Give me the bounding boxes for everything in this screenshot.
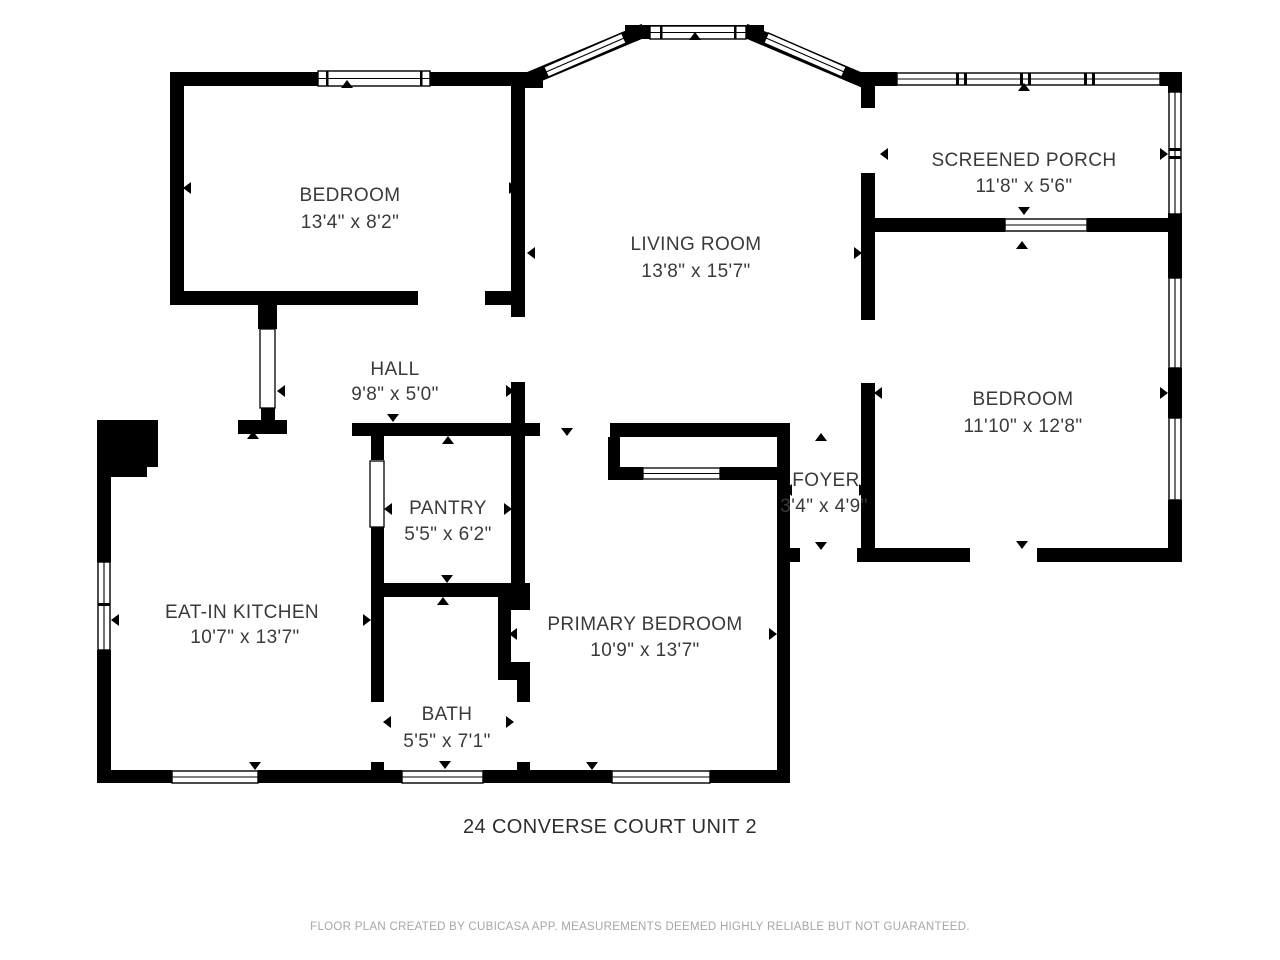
room-name: BATH — [422, 704, 473, 725]
window — [318, 71, 430, 86]
room-label-eat-in-kitchen: EAT-IN KITCHEN 10'7" x 13'7" — [165, 602, 319, 648]
room-label-bath: BATH 5'5" x 7'1" — [403, 704, 490, 752]
room-dimensions: 13'8" x 15'7" — [641, 261, 750, 282]
room-dimensions: 10'7" x 13'7" — [190, 627, 299, 648]
room-name: SCREENED PORCH — [931, 150, 1116, 171]
room-dimensions: 13'4" x 8'2" — [301, 212, 399, 233]
room-label-hall: HALL 9'8" x 5'0" — [351, 359, 438, 405]
room-label-pantry: PANTRY 5'5" x 6'2" — [404, 498, 491, 545]
window — [1169, 278, 1181, 368]
closet-sliding-door — [643, 468, 720, 479]
floorplan-canvas: BEDROOM 13'4" x 8'2" LIVING ROOM 13'8" x… — [0, 0, 1280, 960]
bay-window-left — [544, 33, 626, 77]
room-name: PANTRY — [409, 498, 487, 519]
window — [1169, 92, 1181, 214]
room-name: PRIMARY BEDROOM — [547, 614, 742, 635]
plan-footer-disclaimer: FLOOR PLAN CREATED BY CUBICASA APP. MEAS… — [310, 921, 970, 933]
window — [1169, 418, 1181, 500]
room-labels: BEDROOM 13'4" x 8'2" LIVING ROOM 13'8" x… — [165, 150, 1117, 752]
room-dimensions: 5'5" x 6'2" — [404, 524, 491, 545]
floorplan-drawing: BEDROOM 13'4" x 8'2" LIVING ROOM 13'8" x… — [0, 0, 1280, 960]
room-name: EAT-IN KITCHEN — [165, 602, 319, 623]
room-dimensions: 3'4" x 4'9" — [780, 496, 867, 517]
room-name: LIVING ROOM — [630, 234, 761, 255]
room-dimensions: 11'8" x 5'6" — [975, 176, 1072, 197]
bay-window-right — [764, 33, 846, 77]
window — [402, 771, 483, 783]
room-dimensions: 9'8" x 5'0" — [351, 384, 438, 405]
room-dimensions: 10'9" x 13'7" — [590, 640, 699, 661]
window — [612, 771, 710, 783]
pantry-door — [370, 461, 384, 527]
room-label-screened-porch: SCREENED PORCH 11'8" x 5'6" — [931, 150, 1116, 197]
porch-window-band — [897, 73, 1160, 85]
room-name: FOYER — [792, 470, 859, 491]
hall-entry-door — [260, 329, 275, 408]
room-dimensions: 11'10" x 12'8" — [964, 416, 1083, 437]
room-label-living-room: LIVING ROOM 13'8" x 15'7" — [630, 234, 761, 282]
room-name: BEDROOM — [300, 185, 401, 206]
room-name: HALL — [370, 359, 419, 380]
room-label-primary-bedroom: PRIMARY BEDROOM 10'9" x 13'7" — [547, 614, 742, 661]
window — [98, 562, 110, 650]
room-label-foyer: FOYER 3'4" x 4'9" — [780, 470, 867, 517]
plan-title: 24 CONVERSE COURT UNIT 2 — [463, 816, 757, 838]
room-name: BEDROOM — [973, 389, 1074, 410]
window — [172, 771, 258, 783]
room-label-bedroom-upper-left: BEDROOM 13'4" x 8'2" — [300, 185, 401, 233]
room-label-bedroom-right: BEDROOM 11'10" x 12'8" — [964, 389, 1083, 437]
window — [1005, 219, 1087, 231]
room-dimensions: 5'5" x 7'1" — [403, 731, 490, 752]
